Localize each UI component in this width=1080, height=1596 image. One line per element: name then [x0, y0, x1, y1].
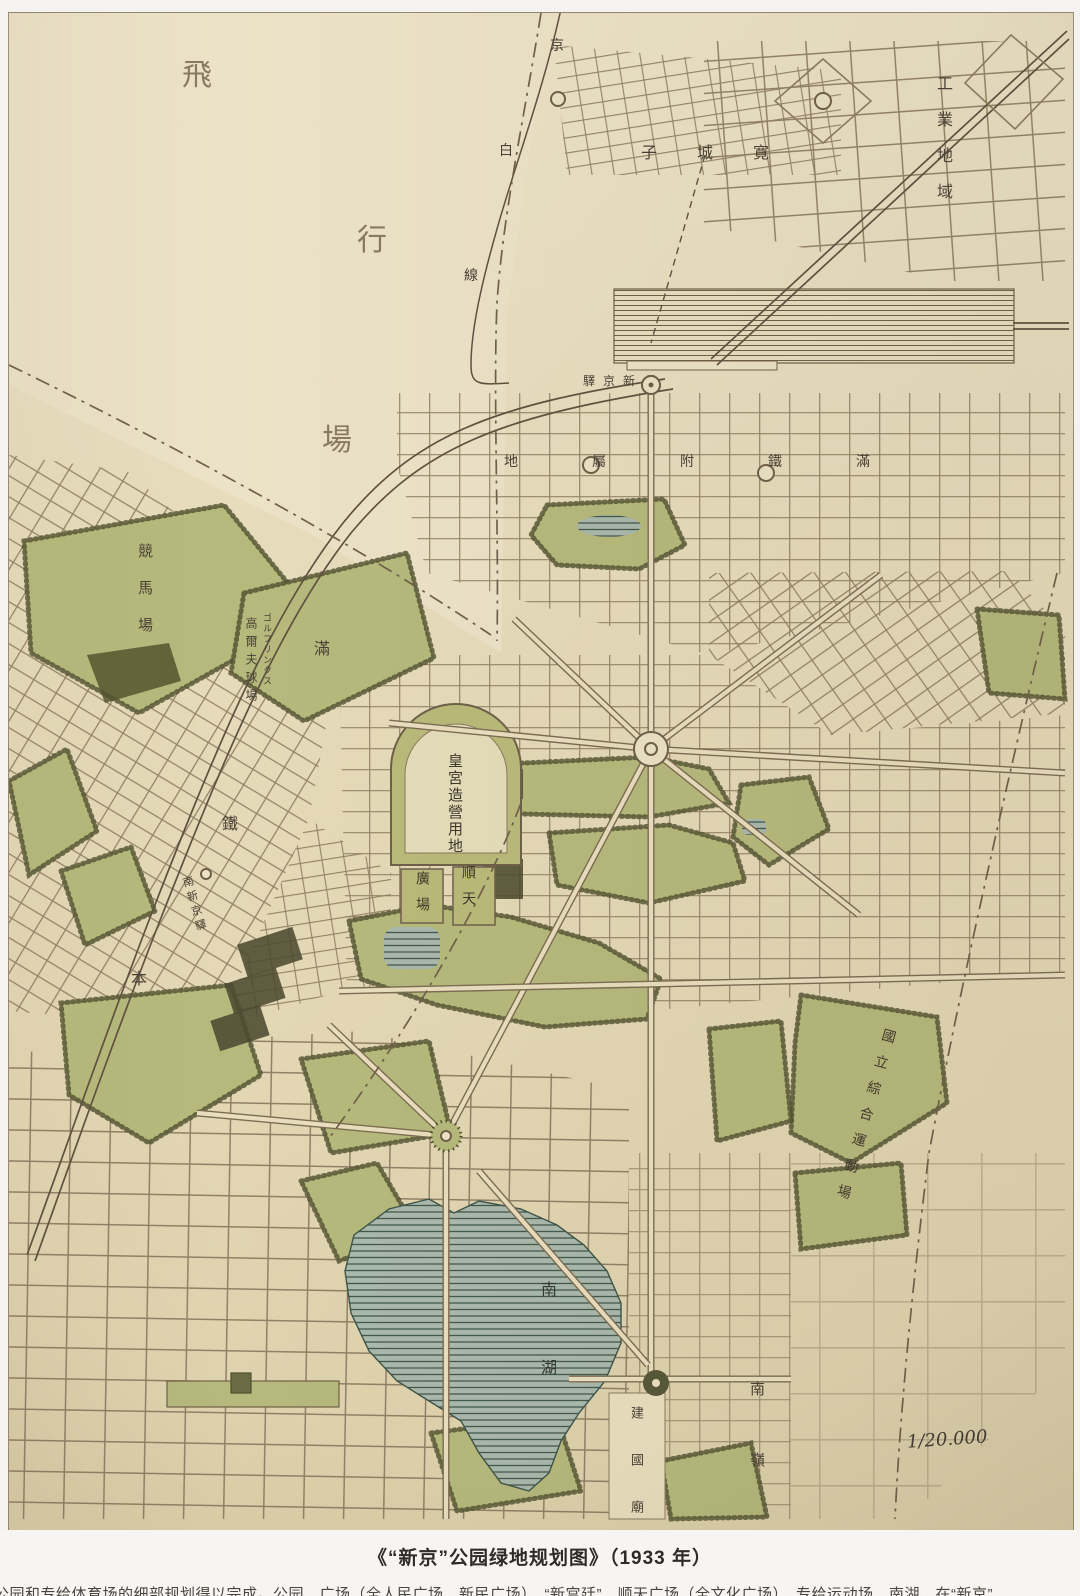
map-plate: 飛 行 場 京 白 線 寛城子 工業地域 新京驛 滿鐵附屬地 競馬場 高爾夫球場… [8, 12, 1074, 1532]
label-xinjing-station: 新京驛 [583, 375, 643, 387]
label-plaza-hiroba: 廣場 [415, 871, 429, 923]
label-airfield-char3: 場 [322, 426, 352, 456]
label-kuanchengzi: 寛城子 [641, 145, 809, 161]
label-palace-site: 皇宮造營用地 [447, 753, 462, 855]
label-jingbai-line-char2: 白 [499, 144, 513, 158]
label-jingbai-line-char3: 線 [464, 269, 478, 283]
label-jianguo-temple: 建國廟 [629, 1406, 642, 1547]
map-caption-title: 《“新京”公园绿地规划图》（1933 年） [0, 1543, 1080, 1570]
label-smr-railway-zone: 滿鐵附屬地 [504, 455, 944, 469]
label-mantetsu-line-char1: 滿 [314, 641, 330, 657]
label-airfield-char1: 飛 [182, 61, 212, 91]
rail-yard [614, 289, 1014, 363]
label-shuntian-plaza: 順天 [461, 865, 475, 917]
label-racecourse: 競馬場 [137, 543, 152, 654]
label-golf-links-cn: 高爾夫球場 [245, 617, 257, 707]
label-jingbai-line-char1: 京 [550, 39, 564, 53]
label-mantetsu-line-char3: 本 [131, 971, 147, 987]
caption-footnote-partial: 公园和专给体育场的细部规划得以完成。公园、广场（全人民广场、新民广场）、“新宫廷… [0, 1583, 1080, 1596]
scanned-map-photo: 飛 行 場 京 白 線 寛城子 工業地域 新京驛 滿鐵附屬地 競馬場 高爾夫球場… [0, 0, 1080, 1596]
label-south-lake: 南湖 [539, 1281, 555, 1437]
label-industrial-area: 工業地域 [935, 75, 951, 219]
label-airfield-char2: 行 [357, 226, 387, 256]
label-mantetsu-line-char2: 鐵 [222, 816, 238, 832]
label-nanling: 南嶺 [749, 1381, 764, 1523]
label-golf-links-kana: ゴルフリンクス [261, 613, 270, 687]
caption-area: 《“新京”公园绿地规划图》（1933 年） 公园和专给体育场的细部规划得以完成。… [0, 1530, 1080, 1596]
